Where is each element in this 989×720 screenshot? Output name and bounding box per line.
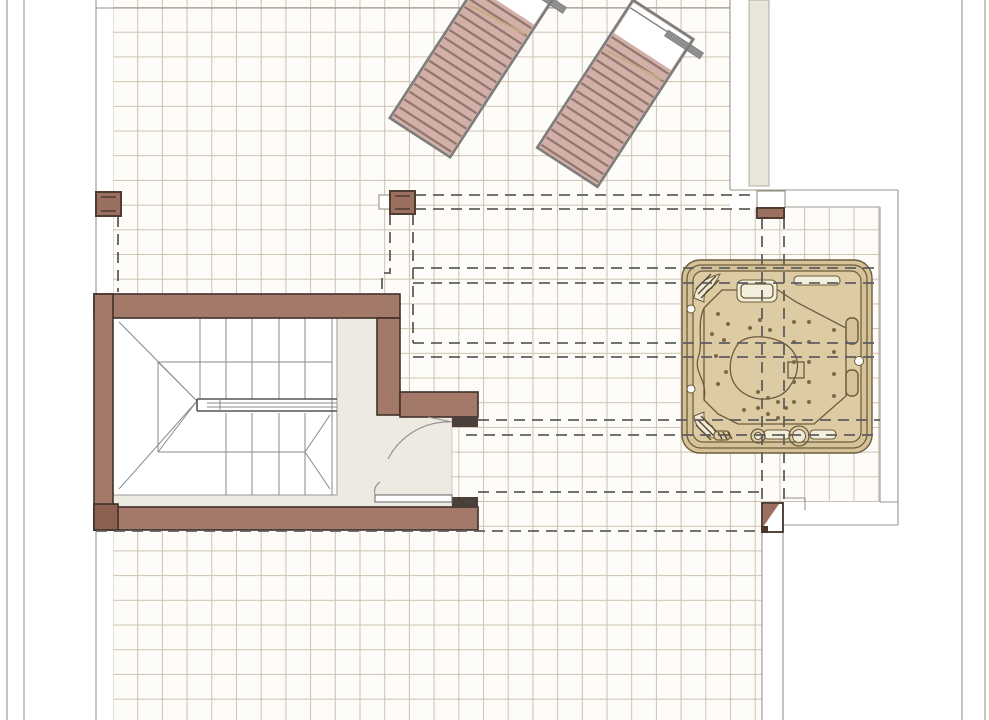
door-leaf [375, 495, 452, 502]
upper-wall-strip [749, 0, 769, 186]
pergola-post-1 [96, 192, 121, 216]
door-jamb-bottom [452, 497, 478, 508]
pergola-post-2 [390, 191, 415, 214]
pergola-post-4 [761, 503, 783, 533]
floor-plan-canvas [0, 0, 989, 720]
pergola-post-3 [757, 208, 784, 218]
door-jamb-top [452, 417, 478, 427]
floor-plan-drawing [0, 0, 989, 720]
corner-pilaster [94, 504, 118, 530]
